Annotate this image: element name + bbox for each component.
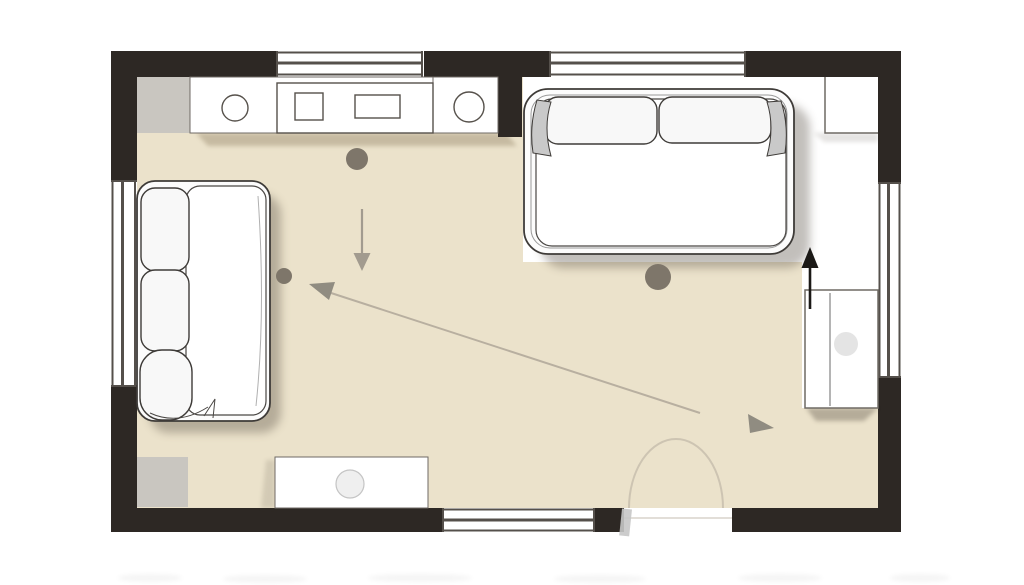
sink-right (454, 92, 484, 122)
door-opening (624, 508, 732, 532)
corner-unit-bottom-left (137, 457, 188, 507)
watermark-smudge (118, 574, 950, 583)
sofa-left-cushion-1 (141, 188, 189, 271)
window-top-left (276, 51, 423, 77)
table-circle (336, 470, 364, 498)
wall-left-upper (111, 51, 137, 180)
placement-dot-2 (276, 268, 292, 284)
window-top-right (549, 51, 746, 77)
wall-bottom-3 (732, 508, 901, 532)
sink-left (222, 95, 248, 121)
wall-bottom-1 (111, 508, 442, 532)
window-left (111, 180, 137, 387)
cooktop-square (295, 93, 323, 120)
sofa-top-right (524, 89, 810, 268)
sofa-cushion-left (545, 97, 657, 144)
kitchen-counter-run (137, 77, 498, 133)
sofa-left-cushion-2 (141, 270, 189, 351)
floor-plan-canvas (0, 0, 1024, 585)
wall-top-3 (746, 51, 901, 77)
wall-bottom-2 (595, 508, 624, 532)
side-table-bottom (261, 457, 428, 508)
wall-right-upper (878, 51, 901, 182)
sofa-left (137, 181, 281, 433)
sofa-cushion-right (659, 97, 771, 143)
cabinet-body (825, 77, 878, 133)
wall-top-2 (424, 51, 549, 77)
wall-pillar-kitchen (498, 77, 522, 137)
counter-floor-shadow (196, 133, 517, 146)
sofa-left-seat (186, 186, 266, 415)
cabinet-shadow (814, 133, 878, 142)
window-bottom (442, 508, 595, 532)
placement-dot-3 (645, 264, 671, 290)
cooktop-rect (355, 95, 400, 118)
window-right (878, 182, 901, 378)
wall-cabinet-top-right (814, 77, 878, 142)
sideboard-right (805, 290, 878, 421)
sideboard-circle (834, 332, 858, 356)
kitchen-corner-unit (137, 77, 190, 133)
sofa-left-arm-roll (140, 350, 192, 420)
placement-dot-1 (346, 148, 368, 170)
floor-plan-drawing (0, 0, 1024, 585)
